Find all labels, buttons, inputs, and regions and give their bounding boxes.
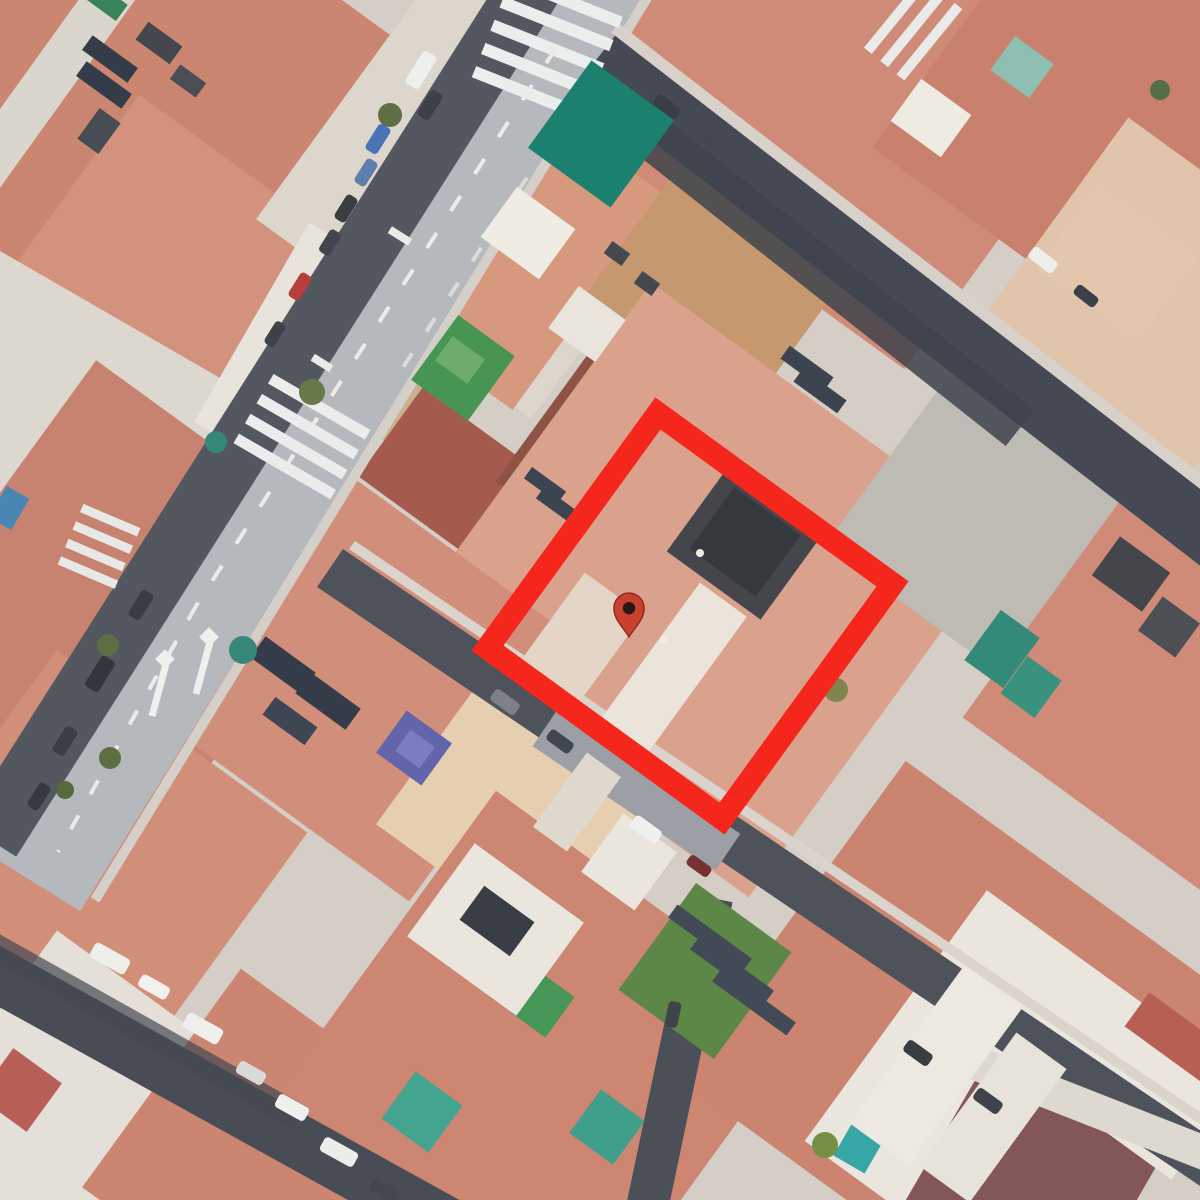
light-wash xyxy=(0,0,1200,1200)
atmosphere xyxy=(0,0,1200,1200)
satellite-map-view[interactable] xyxy=(0,0,1200,1200)
satellite-imagery xyxy=(0,0,1200,1200)
map-pin-hole xyxy=(623,602,635,614)
